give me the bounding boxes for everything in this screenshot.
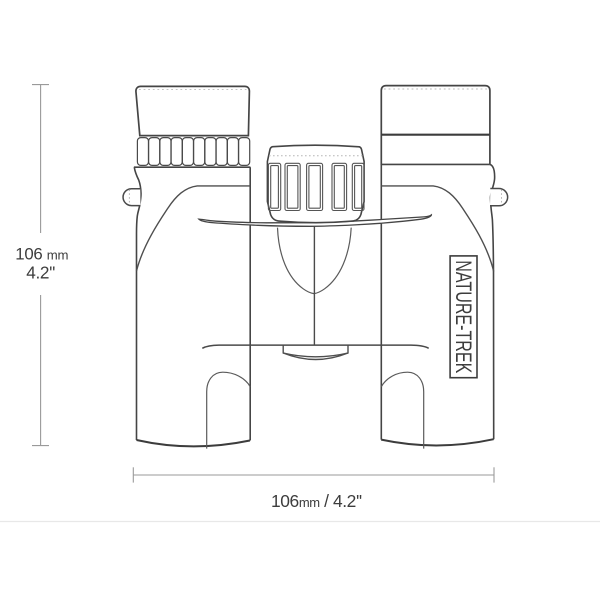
svg-text:NATURE-TREK: NATURE-TREK bbox=[451, 260, 476, 373]
svg-text:4.2'': 4.2'' bbox=[26, 263, 55, 283]
svg-text:106 mm: 106 mm bbox=[15, 244, 68, 263]
